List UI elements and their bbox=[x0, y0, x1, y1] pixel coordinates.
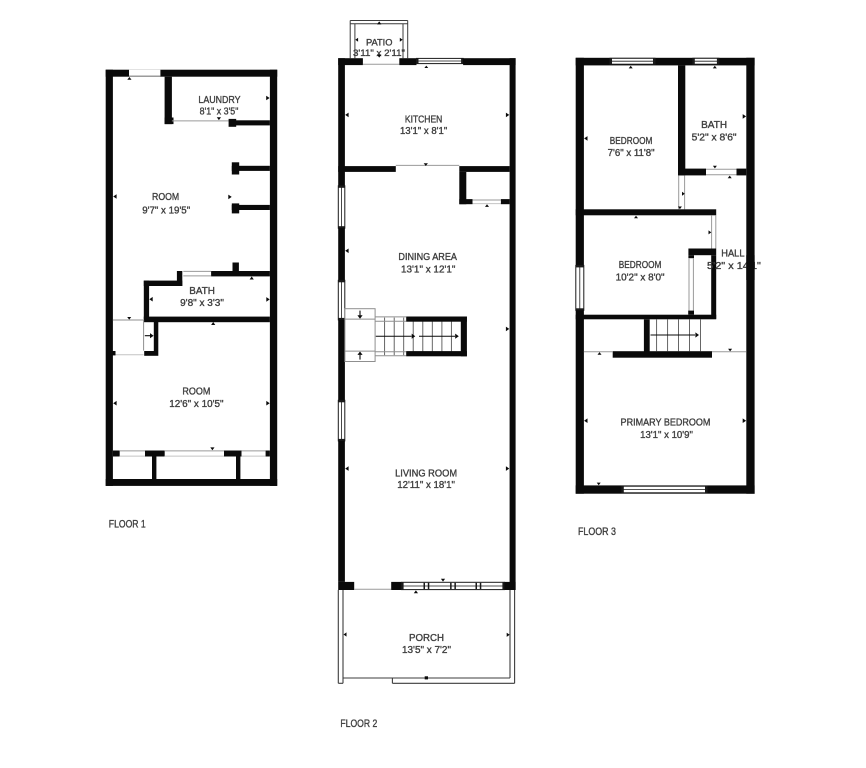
svg-text:7'6" x 11'8": 7'6" x 11'8" bbox=[608, 148, 655, 159]
svg-text:3'11" x 2'11": 3'11" x 2'11" bbox=[353, 48, 405, 59]
svg-text:FLOOR 2: FLOOR 2 bbox=[340, 718, 377, 730]
svg-text:BATH: BATH bbox=[701, 120, 727, 131]
svg-text:13'1" x 8'1": 13'1" x 8'1" bbox=[400, 126, 448, 137]
svg-text:LAUNDRY: LAUNDRY bbox=[198, 95, 240, 106]
svg-text:PATIO: PATIO bbox=[366, 37, 393, 48]
svg-text:13'1" x 12'1": 13'1" x 12'1" bbox=[401, 264, 456, 275]
svg-text:KITCHEN: KITCHEN bbox=[405, 115, 442, 126]
svg-text:5'2" x 8'6": 5'2" x 8'6" bbox=[692, 133, 737, 144]
svg-text:13'5" x 7'2": 13'5" x 7'2" bbox=[402, 645, 451, 656]
svg-text:12'11" x 18'1": 12'11" x 18'1" bbox=[397, 480, 455, 491]
svg-text:9'8" x 3'3": 9'8" x 3'3" bbox=[180, 298, 224, 309]
svg-text:10'2" x 8'0": 10'2" x 8'0" bbox=[616, 273, 665, 284]
svg-text:PORCH: PORCH bbox=[409, 633, 444, 644]
svg-text:ROOM: ROOM bbox=[152, 192, 179, 203]
svg-text:9'7" x 19'5": 9'7" x 19'5" bbox=[142, 206, 190, 217]
svg-text:13'1" x 10'9": 13'1" x 10'9" bbox=[640, 430, 693, 441]
svg-text:BEDROOM: BEDROOM bbox=[619, 260, 662, 271]
svg-text:FLOOR 3: FLOOR 3 bbox=[578, 526, 616, 538]
svg-text:ROOM: ROOM bbox=[182, 386, 210, 397]
svg-text:BEDROOM: BEDROOM bbox=[610, 136, 653, 147]
svg-text:HALL: HALL bbox=[721, 249, 745, 260]
svg-text:PRIMARY BEDROOM: PRIMARY BEDROOM bbox=[621, 417, 711, 428]
svg-text:LIVING ROOM: LIVING ROOM bbox=[395, 468, 457, 479]
svg-text:12'6" x 10'5": 12'6" x 10'5" bbox=[169, 399, 224, 410]
svg-text:BATH: BATH bbox=[189, 286, 215, 297]
svg-text:FLOOR 1: FLOOR 1 bbox=[109, 519, 146, 531]
svg-text:DINING AREA: DINING AREA bbox=[398, 252, 457, 263]
svg-text:8'1" x 3'5": 8'1" x 3'5" bbox=[200, 107, 239, 118]
